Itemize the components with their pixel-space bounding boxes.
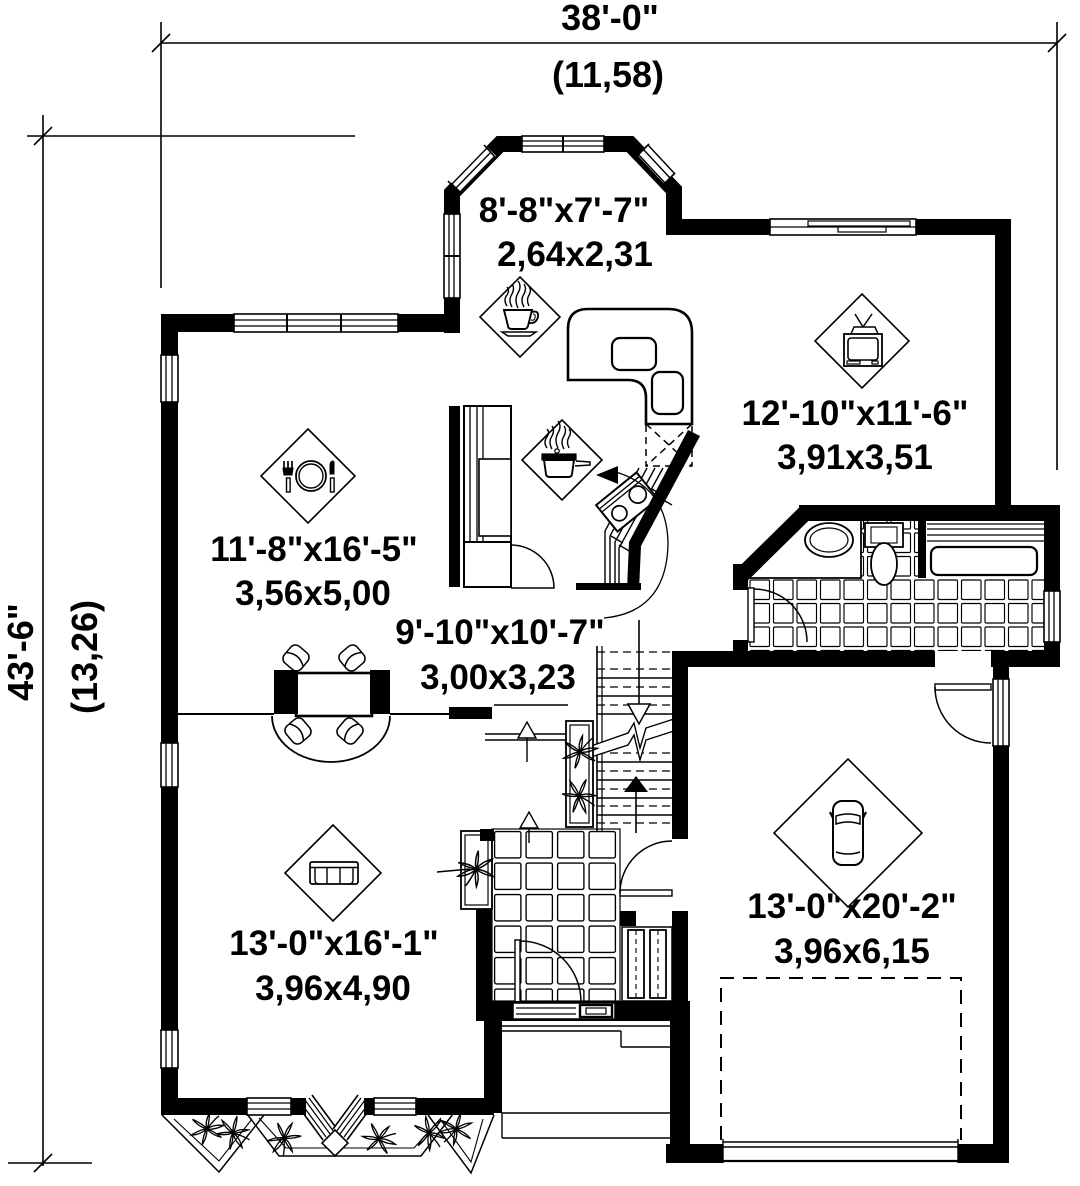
svg-text:12'-10"x11'-6": 12'-10"x11'-6"	[742, 394, 969, 433]
svg-text:3,56x5,00: 3,56x5,00	[235, 574, 391, 613]
svg-text:3,96x6,15: 3,96x6,15	[774, 932, 930, 971]
svg-text:2,64x2,31: 2,64x2,31	[497, 235, 653, 274]
svg-text:8'-8"x7'-7": 8'-8"x7'-7"	[479, 191, 649, 230]
svg-text:(13,26): (13,26)	[64, 600, 105, 714]
svg-text:43'-6": 43'-6"	[0, 603, 41, 701]
svg-text:11'-8"x16'-5": 11'-8"x16'-5"	[210, 530, 417, 569]
svg-text:3,96x4,90: 3,96x4,90	[255, 969, 411, 1008]
svg-text:(11,58): (11,58)	[552, 54, 664, 95]
svg-text:38'-0": 38'-0"	[561, 0, 659, 38]
svg-text:3,00x3,23: 3,00x3,23	[420, 658, 576, 697]
svg-text:9'-10"x10'-7": 9'-10"x10'-7"	[395, 613, 604, 652]
svg-text:3,91x3,51: 3,91x3,51	[777, 438, 933, 477]
svg-text:13'-0"x16'-1": 13'-0"x16'-1"	[229, 924, 438, 963]
